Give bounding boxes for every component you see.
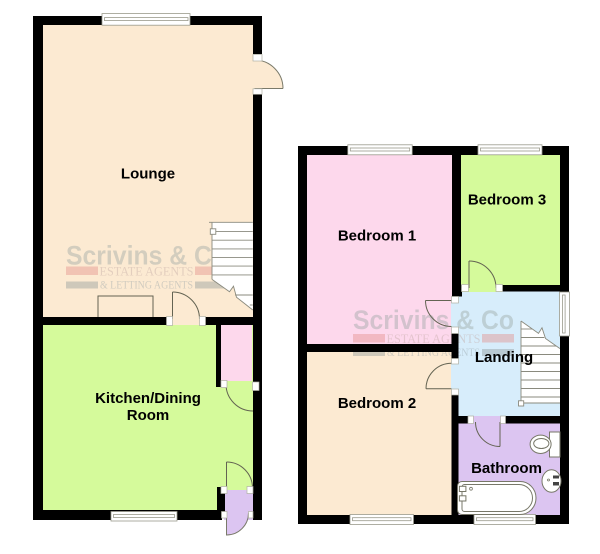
svg-text:Kitchen/Dining: Kitchen/Dining (95, 390, 201, 407)
svg-text:Bedroom 1: Bedroom 1 (338, 228, 416, 245)
svg-text:Bedroom 3: Bedroom 3 (468, 192, 546, 209)
svg-text:ESTATE AGENTS: ESTATE AGENTS (387, 331, 481, 346)
svg-text:Landing: Landing (475, 349, 533, 366)
svg-text:Bedroom 2: Bedroom 2 (338, 395, 416, 412)
svg-text:& LETTING AGENTS: & LETTING AGENTS (100, 280, 193, 292)
svg-text:Room: Room (127, 407, 170, 424)
svg-text:ESTATE AGENTS: ESTATE AGENTS (100, 264, 194, 279)
svg-text:Lounge: Lounge (121, 166, 175, 183)
svg-text:Bathroom: Bathroom (471, 460, 542, 477)
